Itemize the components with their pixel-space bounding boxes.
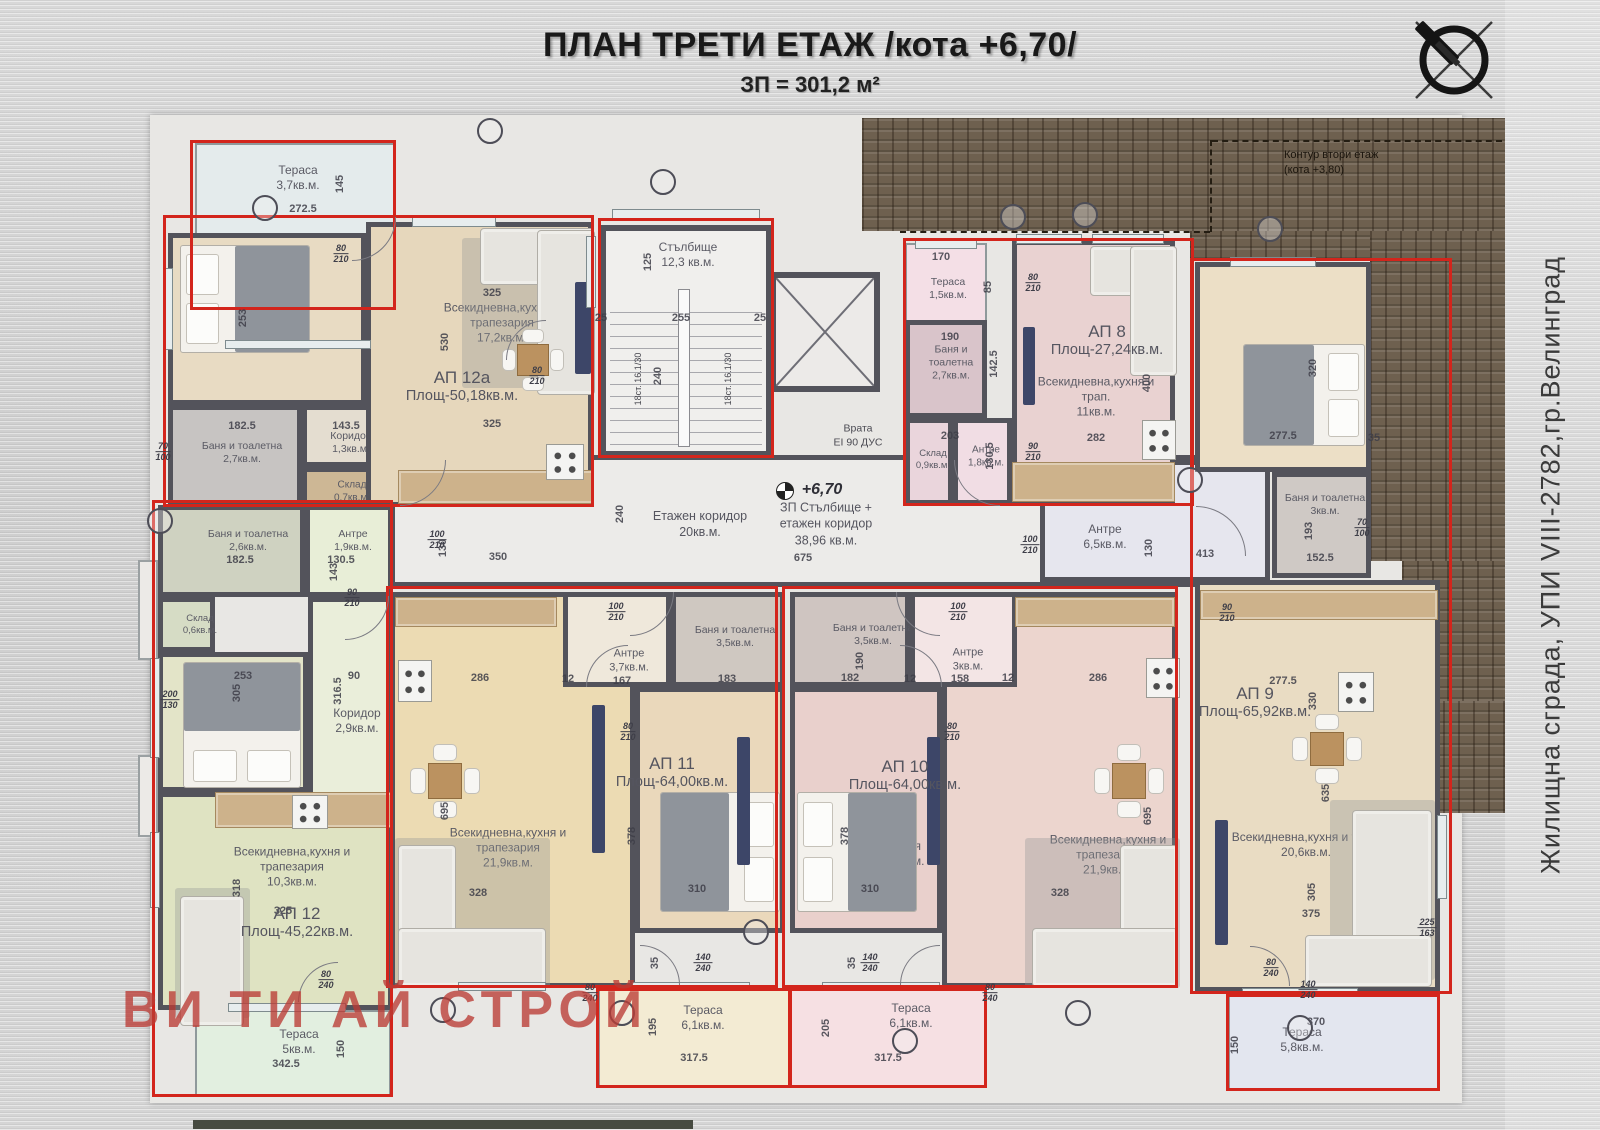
roof-area: [1370, 231, 1505, 561]
room-ap11-antre: Антре3,7кв.м.: [563, 592, 671, 687]
window: [150, 658, 160, 758]
table-icon: [414, 748, 476, 814]
ward-icon: [1215, 820, 1228, 945]
window: [150, 832, 160, 908]
stove-icon: [1146, 658, 1180, 698]
staircase-label: Стълбище 12,3 кв.м.: [633, 240, 743, 270]
page-subtitle: ЗП = 301,2 м²: [740, 72, 879, 98]
window: [1016, 234, 1082, 244]
room-label-ap9-bath: Баня и тоалетна3кв.м.: [1279, 492, 1371, 518]
plan-layer: Стълбище 12,3 кв.м. 18ст. 16.1/30 18ст. …: [0, 0, 1600, 1130]
north-arrow-icon: [1404, 10, 1504, 115]
bed-icon: [797, 792, 917, 912]
sofa-icon: [1032, 928, 1178, 987]
room-label-ap12a-terrace: Тераса3,7кв.м.: [238, 163, 358, 193]
room-ap12a-bath: Баня и тоалетна2,7кв.м.: [168, 405, 302, 505]
room-ap10-terrace: Тераса6,1кв.м.: [790, 988, 987, 1088]
room-label-ap11-terrace: Тераса6,1кв.м.: [643, 1003, 763, 1033]
window: [1242, 988, 1358, 997]
staircase: Стълбище 12,3 кв.м. 18ст. 16.1/30 18ст. …: [600, 225, 772, 457]
balcony-slab: [138, 560, 158, 660]
room-ap8-bath: Баня и тоалетна2,7кв.м.: [905, 320, 987, 418]
window: [1230, 257, 1316, 267]
page-title: ПЛАН ТРЕТИ ЕТАЖ /кота +6,70/: [543, 26, 1077, 65]
window: [915, 240, 977, 249]
room-label-ap8-bath: Баня и тоалетна2,7кв.м.: [912, 343, 990, 382]
room-ap11-bath: Баня и тоалетна3,5кв.м.: [671, 592, 785, 687]
balcony-slab: [138, 755, 158, 837]
table-icon: [1296, 718, 1358, 780]
room-ap8-storage: Склад0,9кв.м.: [905, 418, 953, 505]
staircase-name: Стълбище: [659, 240, 718, 255]
room-ap12-storage: Склад0,6кв.м.: [158, 597, 215, 652]
staircase-area: 12,3 кв.м.: [661, 255, 714, 270]
room-ap9-bath: Баня и тоалетна3кв.м.: [1272, 472, 1371, 578]
room-label-ap9-terrace: Тераса5,8кв.м.: [1242, 1025, 1362, 1055]
room-label-ap12a-bath: Баня и тоалетна2,7кв.м.: [187, 440, 297, 466]
room-label-ap10-bath: Баня и тоалетна3,5кв.м.: [823, 622, 923, 648]
elevator-cross-icon: [776, 278, 874, 386]
room-label-ap11-antre: Антре3,7кв.м.: [589, 647, 669, 675]
room-label-ap10-terrace: Тераса6,1кв.м.: [851, 1001, 971, 1031]
room-ap10-antre: Антре3кв.м.: [910, 592, 1017, 687]
room-label-ap12-storage: Склад0,6кв.м.: [173, 613, 228, 637]
room-label-ap9-antre: Антре6,5кв.м.: [1065, 522, 1145, 552]
counter-icon: [1015, 597, 1175, 627]
counter-icon: [1200, 590, 1438, 620]
bed-icon: [183, 662, 301, 788]
room-ap8-antre: Антре1,8кв.м.: [953, 418, 1012, 505]
room-ap9-terrace: Тераса5,8кв.м.: [1228, 995, 1440, 1090]
floor-plan-canvas: Стълбище 12,3 кв.м. 18ст. 16.1/30 18ст. …: [0, 0, 1600, 1130]
ward-icon: [927, 737, 940, 865]
room-label-ap11-bath: Баня и тоалетна3,5кв.м.: [685, 624, 785, 650]
stove-icon: [292, 795, 328, 829]
window: [632, 982, 750, 991]
table-icon: [1098, 748, 1160, 814]
ward-icon: [737, 737, 750, 865]
stove-icon: [546, 444, 584, 480]
table-icon: [505, 332, 561, 388]
room-label-ap12-living: Всекидневна,кухня и трапезария10,3кв.м.: [217, 845, 367, 890]
room-label-ap12-antre: Антре1,9кв.м.: [318, 528, 388, 554]
window: [612, 209, 760, 219]
plan-edge-strip: [193, 1120, 693, 1129]
stove-icon: [1142, 420, 1176, 460]
sofa-icon: [1130, 246, 1177, 376]
window: [1092, 234, 1164, 244]
builder-watermark: ВИ ТИ АЙ СТРОЙ: [122, 980, 648, 1040]
second-floor-contour-line: [1212, 140, 1502, 142]
room-label-ap8-antre: Антре1,8кв.м.: [957, 445, 1015, 470]
window: [163, 268, 173, 350]
bed-icon: [1243, 344, 1365, 446]
counter-icon: [395, 597, 557, 627]
room-label-ap12-corridor: Коридор2,9кв.м.: [322, 706, 392, 736]
room-label-ap8-terrace: Тераса1,5кв.м.: [913, 276, 983, 302]
room-label-ap10-antre: Антре3кв.м.: [933, 646, 1003, 674]
room-label-ap8-storage: Склад0,9кв.м.: [910, 448, 956, 472]
room-ap12-antre: Антре1,9кв.м.: [305, 505, 393, 597]
window: [225, 340, 371, 349]
room-label-ap12-bath: Баня и тоалетна2,6кв.м.: [188, 528, 308, 554]
window: [586, 236, 596, 308]
room-label-ap8-living: Всекидневна,кухня и трап.11кв.м.: [1026, 375, 1166, 420]
stair-rail: [678, 289, 690, 447]
bed-icon: [180, 245, 310, 353]
window: [1437, 815, 1447, 899]
stove-icon: [398, 660, 432, 702]
bed-icon: [660, 792, 780, 912]
stair-steps-label: 18ст. 16.1/30: [633, 353, 643, 406]
room-ap12-bath: Баня и тоалетна2,6кв.м.: [158, 505, 305, 597]
ward-icon: [1023, 327, 1035, 405]
second-floor-contour-line: [1210, 140, 1212, 232]
window: [822, 982, 940, 991]
roof-area: [862, 118, 1505, 231]
counter-icon: [1012, 462, 1175, 502]
second-floor-contour-line: [900, 231, 1210, 233]
ward-icon: [592, 705, 605, 853]
elevator-shaft: [770, 272, 880, 392]
room-ap10-bath: Баня и тоалетна3,5кв.м.: [790, 592, 910, 687]
sofa-icon: [1305, 935, 1432, 987]
project-side-label: Жилищна сграда, УПИ VIII-2782,гр.Велингр…: [1536, 85, 1567, 1045]
stove-icon: [1338, 672, 1374, 712]
sofa-icon: [398, 928, 546, 987]
stair-steps-label: 18ст. 16.1/30: [723, 353, 733, 406]
window: [412, 217, 496, 227]
